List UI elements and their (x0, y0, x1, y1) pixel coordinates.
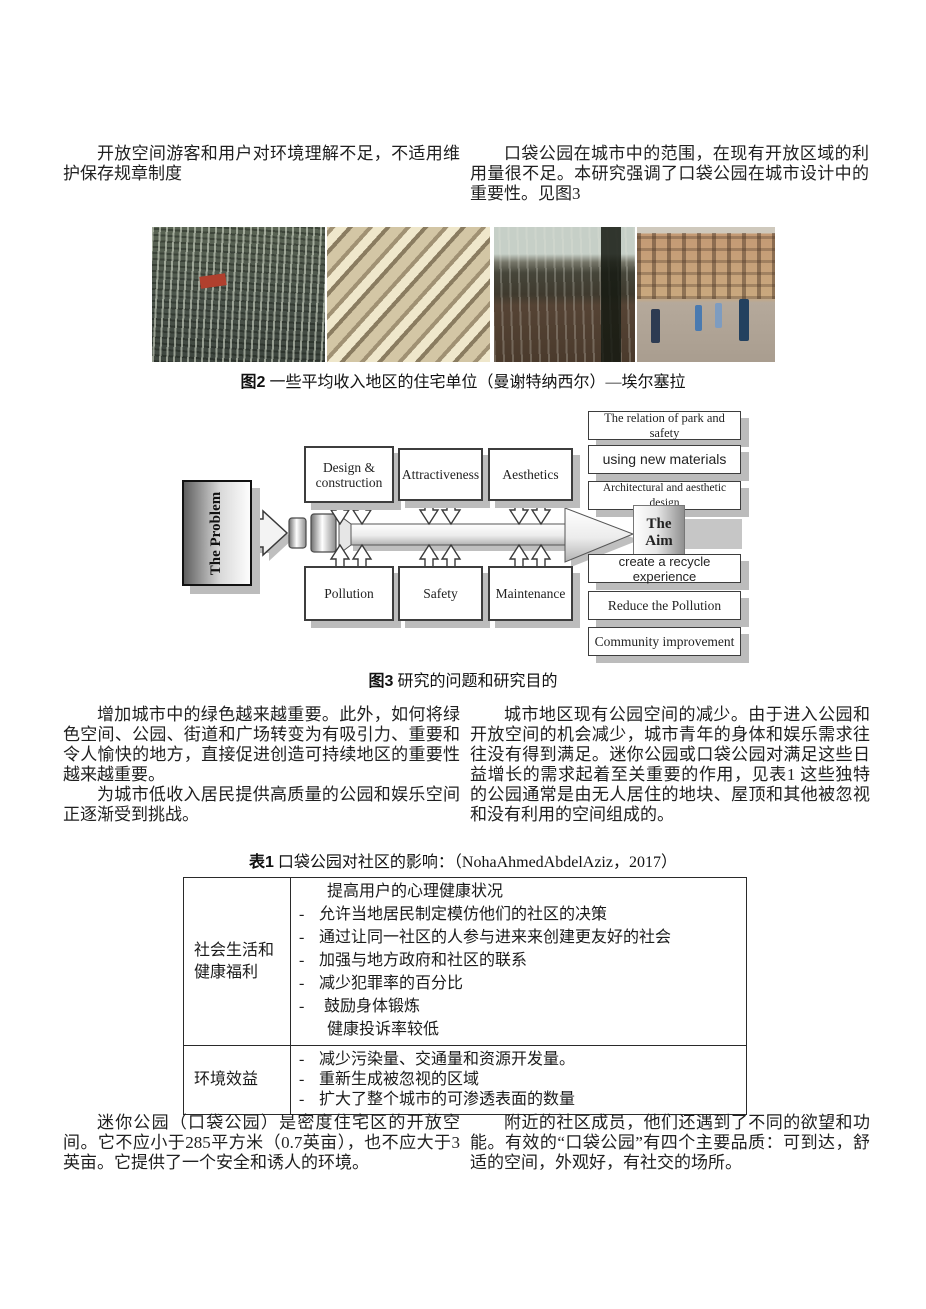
building-texture (637, 233, 775, 299)
table-item: -减少犯罪率的百分比 (293, 972, 740, 995)
person-figure (695, 305, 702, 331)
diagram-problem-box: The Problem (182, 480, 252, 586)
table1-caption-text: 口袋公园对社区的影响：（NohaAhmedAbdelAziz，2017） (278, 854, 677, 871)
diagram-cause-maintenance: Maintenance (488, 566, 573, 621)
building-texture (199, 273, 226, 289)
table-item: 健康投诉率较低 (293, 1018, 740, 1041)
diagram-cause-label: Design & construction (306, 460, 392, 490)
figure2-caption-label: 图2 (241, 374, 266, 391)
person-figure (715, 303, 722, 328)
diagram-aim-label: Reduce the Pollution (608, 598, 721, 613)
diagram-aim-label: using new materials (603, 452, 727, 467)
table-category-cell: 社会生活和健康福利 (184, 878, 291, 1045)
diagram-aim-item-community-improvement: Community improvement (588, 627, 741, 656)
footer-column-right: 附近的社区成员，他们还遇到了不同的欲望和功能。有效的“口袋公园”有四个主要品质：… (470, 1113, 870, 1173)
figure3-caption-text: 研究的问题和研究目的 (397, 673, 557, 690)
diagram-aim-label: Community improvement (595, 634, 735, 649)
person-figure (739, 299, 749, 341)
table-item: -加强与地方政府和社区的联系 (293, 949, 740, 972)
figure2-photo-courtyard-people (637, 227, 775, 362)
figure3-caption: 图3 研究的问题和研究目的 (0, 667, 926, 691)
paragraph: 开放空间游客和用户对环境理解不足，不适用维护保存规章制度 (63, 144, 460, 184)
diagram-cause-aesthetics: Aesthetics (488, 448, 573, 501)
table-items-cell: -减少污染量、交通量和资源开发量。 -重新生成被忽视的区域 -扩大了整个城市的可… (291, 1046, 746, 1114)
paragraph: 迷你公园（口袋公园）是密度住宅区的开放空间。它不应小于285平方米（0.7英亩）… (63, 1113, 460, 1173)
table-item: -通过让同一社区的人参与进来来创建更友好的社会 (293, 926, 740, 949)
table-items-cell: 提高用户的心理健康状况 -允许当地居民制定模仿他们的社区的决策 -通过让同一社区… (291, 878, 746, 1045)
table-category-label: 环境效益 (194, 1069, 258, 1091)
paragraph: 增加城市中的绿色越来越重要。此外，如何将绿色空间、公园、街道和广场转变为有吸引力… (63, 705, 460, 785)
table-item: -重新生成被忽视的区域 (293, 1070, 740, 1090)
figure2-caption-text: 一些平均收入地区的住宅单位（曼谢特纳西尔）—埃尔塞拉 (269, 374, 685, 391)
table-item: -扩大了整个城市的可渗透表面的数量 (293, 1090, 740, 1110)
paragraph: 城市地区现有公园空间的减少。由于进入公园和开放空间的机会减少，城市青年的身体和娱… (470, 705, 870, 825)
diagram-cause-label: Safety (423, 586, 458, 601)
diagram-aim-label: create a recycle experience (589, 554, 740, 584)
table-item: -允许当地居民制定模仿他们的社区的决策 (293, 903, 740, 926)
table-item: 提高用户的心理健康状况 (293, 880, 740, 903)
person-figure (651, 309, 660, 343)
diagram-cause-label: Attractiveness (402, 467, 479, 482)
diagram-connector-bar (680, 519, 742, 549)
figure2-photo-vacant-lot-street (494, 227, 635, 362)
body-column-left: 增加城市中的绿色越来越重要。此外，如何将绿色空间、公园、街道和广场转变为有吸引力… (63, 705, 460, 825)
figure2-photo-housing-blocks-aerial (327, 227, 490, 362)
diagram-cause-pollution: Pollution (304, 566, 394, 621)
table-item: -减少污染量、交通量和资源开发量。 (293, 1050, 740, 1070)
table-row: 环境效益 -减少污染量、交通量和资源开发量。 -重新生成被忽视的区域 -扩大了整… (184, 1045, 746, 1114)
footer-column-left: 迷你公园（口袋公园）是密度住宅区的开放空间。它不应小于285平方米（0.7英亩）… (63, 1113, 460, 1173)
table-category-cell: 环境效益 (184, 1046, 291, 1114)
table1: 社会生活和健康福利 提高用户的心理健康状况 -允许当地居民制定模仿他们的社区的决… (183, 877, 747, 1115)
diagram-cause-design-construction: Design & construction (304, 446, 394, 503)
intro-paragraph-right: 口袋公园在城市中的范围，在现有开放区域的利用量很不足。本研究强调了口袋公园在城市… (470, 144, 869, 204)
table-row: 社会生活和健康福利 提高用户的心理健康状况 -允许当地居民制定模仿他们的社区的决… (184, 878, 746, 1045)
figure2-caption: 图2 一些平均收入地区的住宅单位（曼谢特纳西尔）—埃尔塞拉 (0, 368, 926, 392)
diagram-aim-item-reduce-pollution: Reduce the Pollution (588, 591, 741, 620)
diagram-cause-label: Aesthetics (502, 467, 558, 482)
diagram-aim-item-park-safety: The relation of park and safety (588, 411, 741, 440)
diagram-cause-label: Maintenance (496, 586, 566, 601)
body-column-right: 城市地区现有公园空间的减少。由于进入公园和开放空间的机会减少，城市青年的身体和娱… (470, 705, 870, 825)
paper-page: 开放空间游客和用户对环境理解不足，不适用维护保存规章制度 口袋公园在城市中的范围… (0, 0, 926, 1309)
diagram-aim-item-new-materials: using new materials (588, 445, 741, 474)
diagram-cause-label: Pollution (324, 586, 374, 601)
diagram-cause-attractiveness: Attractiveness (398, 448, 483, 501)
diagram-problem-label: The Problem (209, 491, 226, 574)
figure3-diagram: The Problem Design & construction Attrac… (175, 406, 747, 658)
diagram-aim-label: The relation of park and safety (589, 411, 740, 441)
diagram-aim-item-recycle-experience: create a recycle experience (588, 554, 741, 583)
table1-caption-label: 表1 (249, 854, 274, 871)
diagram-aim-box-label: The Aim (634, 516, 684, 550)
intro-paragraph-left: 开放空间游客和用户对环境理解不足，不适用维护保存规章制度 (63, 144, 460, 184)
paragraph: 为城市低收入居民提供高质量的公园和娱乐空间正逐渐受到挑战。 (63, 785, 460, 825)
table-category-label: 社会生活和健康福利 (194, 940, 286, 984)
diagram-cause-safety: Safety (398, 566, 483, 621)
paragraph: 附近的社区成员，他们还遇到了不同的欲望和功能。有效的“口袋公园”有四个主要品质：… (470, 1113, 870, 1173)
figure3-caption-label: 图3 (369, 673, 394, 690)
table-item: -鼓励身体锻炼 (293, 995, 740, 1018)
figure2-photo-dense-city-aerial (152, 227, 325, 362)
table1-caption: 表1 口袋公园对社区的影响：（NohaAhmedAbdelAziz，2017） (0, 848, 926, 872)
paragraph: 口袋公园在城市中的范围，在现有开放区域的利用量很不足。本研究强调了口袋公园在城市… (470, 144, 869, 204)
diagram-aim-box: The Aim (633, 505, 685, 560)
